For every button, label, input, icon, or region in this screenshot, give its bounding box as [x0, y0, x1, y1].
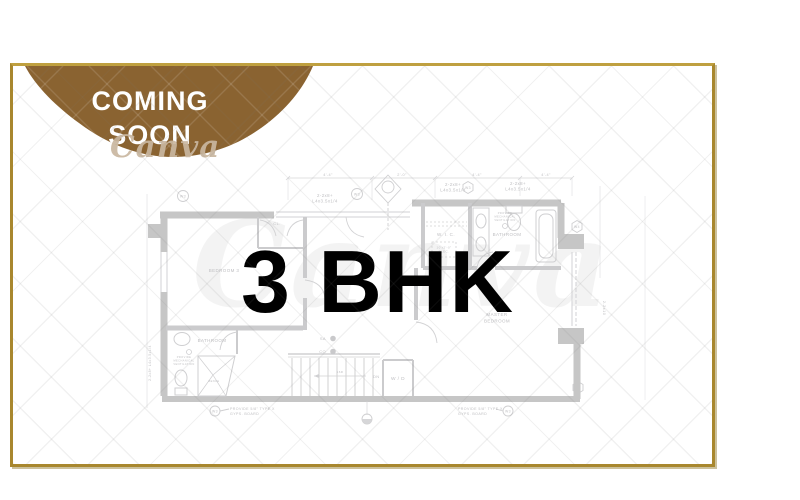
w4-symbol: W4	[574, 225, 580, 229]
dimension-label: 4'-4"	[541, 173, 551, 177]
gyps-note: GYPS. BOARD	[230, 412, 259, 416]
beam-callout: 2-2x8+	[317, 193, 333, 198]
beam-callout: L4x3.5x1/4	[505, 187, 531, 192]
co-detector-dot	[330, 349, 336, 355]
room-label-bathroom-left: BATHROOM	[198, 338, 227, 343]
w3-symbol: W3	[212, 410, 218, 414]
canva-watermark: Canva	[110, 129, 220, 165]
dimension-label: 4'-4"	[472, 173, 482, 177]
w3-symbol: W3	[180, 195, 186, 199]
badge-label-line1: COMING	[25, 88, 275, 115]
dimension-label: 2'-0"	[397, 173, 407, 177]
beam-callout: L4x3.5x1/4	[440, 188, 466, 193]
smoke-alarm-label: SA	[320, 336, 326, 341]
vent-note: MECHANICAL	[494, 215, 515, 219]
dimension-label: 4'-4"	[323, 173, 333, 177]
vent-note: PROVIDE	[498, 211, 512, 215]
beam-callout: 2-2x8+	[445, 182, 461, 187]
w3-symbol: W3	[465, 186, 471, 190]
stair-riser-label: 16R	[337, 370, 344, 374]
coming-soon-card: Canva 4'-4" 2'-0" 4'-4" 4'-4" 2-2x8+	[10, 63, 715, 467]
vent-note: MECHANICAL	[173, 359, 194, 363]
gyps-note: GYPS. BOARD	[458, 412, 487, 416]
smoke-alarm-dot	[330, 336, 336, 342]
stairs	[288, 354, 380, 396]
room-label-laundry: W / D	[391, 376, 405, 382]
co-detector-label: CO	[319, 349, 326, 354]
beam-callout: L4x3.5x1/4	[312, 199, 338, 204]
room-label-closet: CL.	[273, 221, 280, 226]
beam-callout: 2-2x8+	[510, 181, 526, 186]
bench-label: BENCH	[208, 379, 219, 383]
fan-symbol	[503, 224, 508, 229]
gyps-note: PROVIDE 5/8" TYPE X	[458, 407, 503, 411]
headline-text: 3 BHK	[128, 246, 628, 318]
w3-symbol: W3	[354, 193, 360, 197]
vent-note: PROVIDE	[177, 355, 191, 359]
vent-note: VENTILATION	[173, 362, 194, 366]
w3-symbol: W3	[505, 410, 511, 414]
gyps-note: PROVIDE 5/8" TYPE X	[230, 407, 275, 411]
stair-down-label: DN	[373, 374, 380, 379]
vent-note: VENTILATION	[494, 218, 515, 222]
beam-callout: 2-2x8+ L4x3.5x1/4	[148, 345, 152, 381]
floor-level-symbol	[362, 401, 372, 424]
